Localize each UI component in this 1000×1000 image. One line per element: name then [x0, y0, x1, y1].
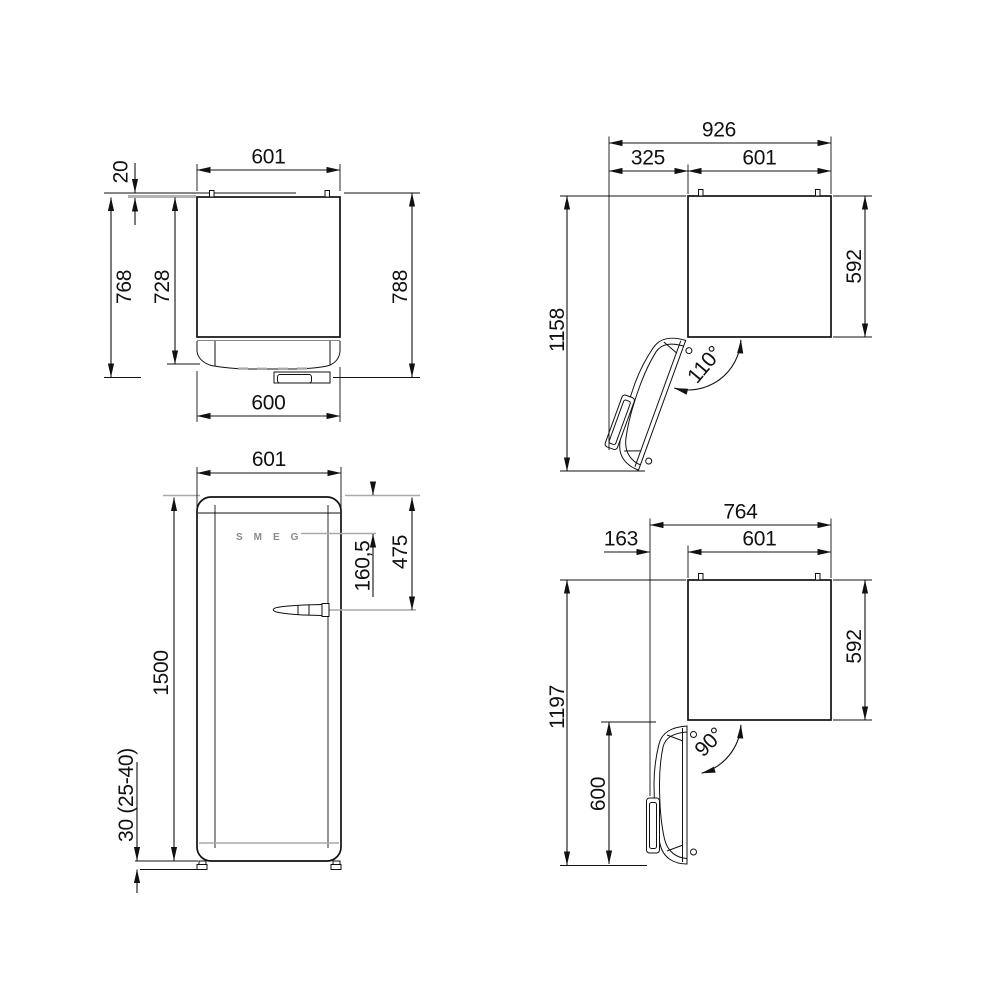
dim-label-door-angle: 90°	[690, 723, 728, 761]
dim-label-door-angle: 110°	[683, 342, 727, 388]
dim-label-top-to-handle: 475	[389, 535, 412, 569]
dim-label-cabinet-depth: 592	[843, 629, 866, 663]
door-front-curve	[197, 341, 340, 369]
open-door-90	[647, 726, 697, 864]
cabinet-outline	[197, 197, 340, 337]
smeg-logo: SMEG	[236, 532, 309, 543]
dim-label-cabinet-depth: 592	[843, 249, 866, 283]
adjustable-feet	[197, 861, 341, 870]
open-door-110	[600, 327, 694, 474]
view-front: SMEG 601 160,5 475 1500 30 (25-40)	[115, 448, 420, 893]
dim-label-cabinet-width: 601	[742, 147, 776, 170]
view-top-open-110: 110° 926 325 601 1158 592	[546, 119, 872, 474]
dimension-drawing-page: 601 20 768 728 788 600 110° 926 325	[0, 0, 1000, 1000]
dim-label-wall-clearance: 20	[110, 161, 133, 184]
cabinet-outline	[688, 196, 831, 337]
dim-label-feet-height: 30 (25-40)	[115, 748, 138, 842]
dim-label-cabinet-width: 601	[742, 528, 776, 551]
dim-label-door-protrusion: 163	[604, 528, 638, 551]
dim-label-depth-overall: 788	[389, 270, 412, 304]
hinge-pin-icon	[699, 190, 704, 197]
technical-drawing: 601 20 768 728 788 600 110° 926 325	[0, 0, 1000, 1000]
dim-label-width-bottom: 600	[251, 392, 285, 415]
dim-label-height: 1500	[150, 650, 173, 696]
hinge-pin-icon	[325, 191, 330, 198]
hinge-pin-icon	[699, 574, 704, 581]
dim-label-width: 601	[252, 448, 286, 471]
dim-label-overall-width: 926	[702, 119, 736, 142]
hinge-pin-icon	[816, 190, 821, 197]
dim-label-depth-body: 728	[151, 270, 174, 304]
handle-top-view	[274, 372, 330, 383]
dim-label-door-depth: 600	[587, 777, 610, 811]
dim-label-width-top: 601	[251, 146, 285, 169]
hinge-pin-icon	[816, 574, 821, 581]
dim-label-top-to-logo: 160,5	[352, 540, 375, 591]
dim-label-overall-width: 764	[723, 501, 758, 524]
dim-label-depth-open: 1158	[546, 308, 569, 352]
hinge-pin-icon	[210, 191, 215, 198]
view-top-closed: 601 20 768 728 788 600	[104, 146, 420, 423]
handle-mount	[322, 604, 329, 617]
view-top-open-90: 90° 764 163 601 1197 592 600	[546, 501, 872, 866]
dim-label-depth-with-handle: 768	[113, 270, 136, 304]
fridge-front-outline	[197, 497, 341, 861]
dim-label-depth-open: 1197	[546, 685, 569, 729]
dim-label-door-swing: 325	[631, 147, 665, 170]
cabinet-outline	[688, 580, 831, 720]
